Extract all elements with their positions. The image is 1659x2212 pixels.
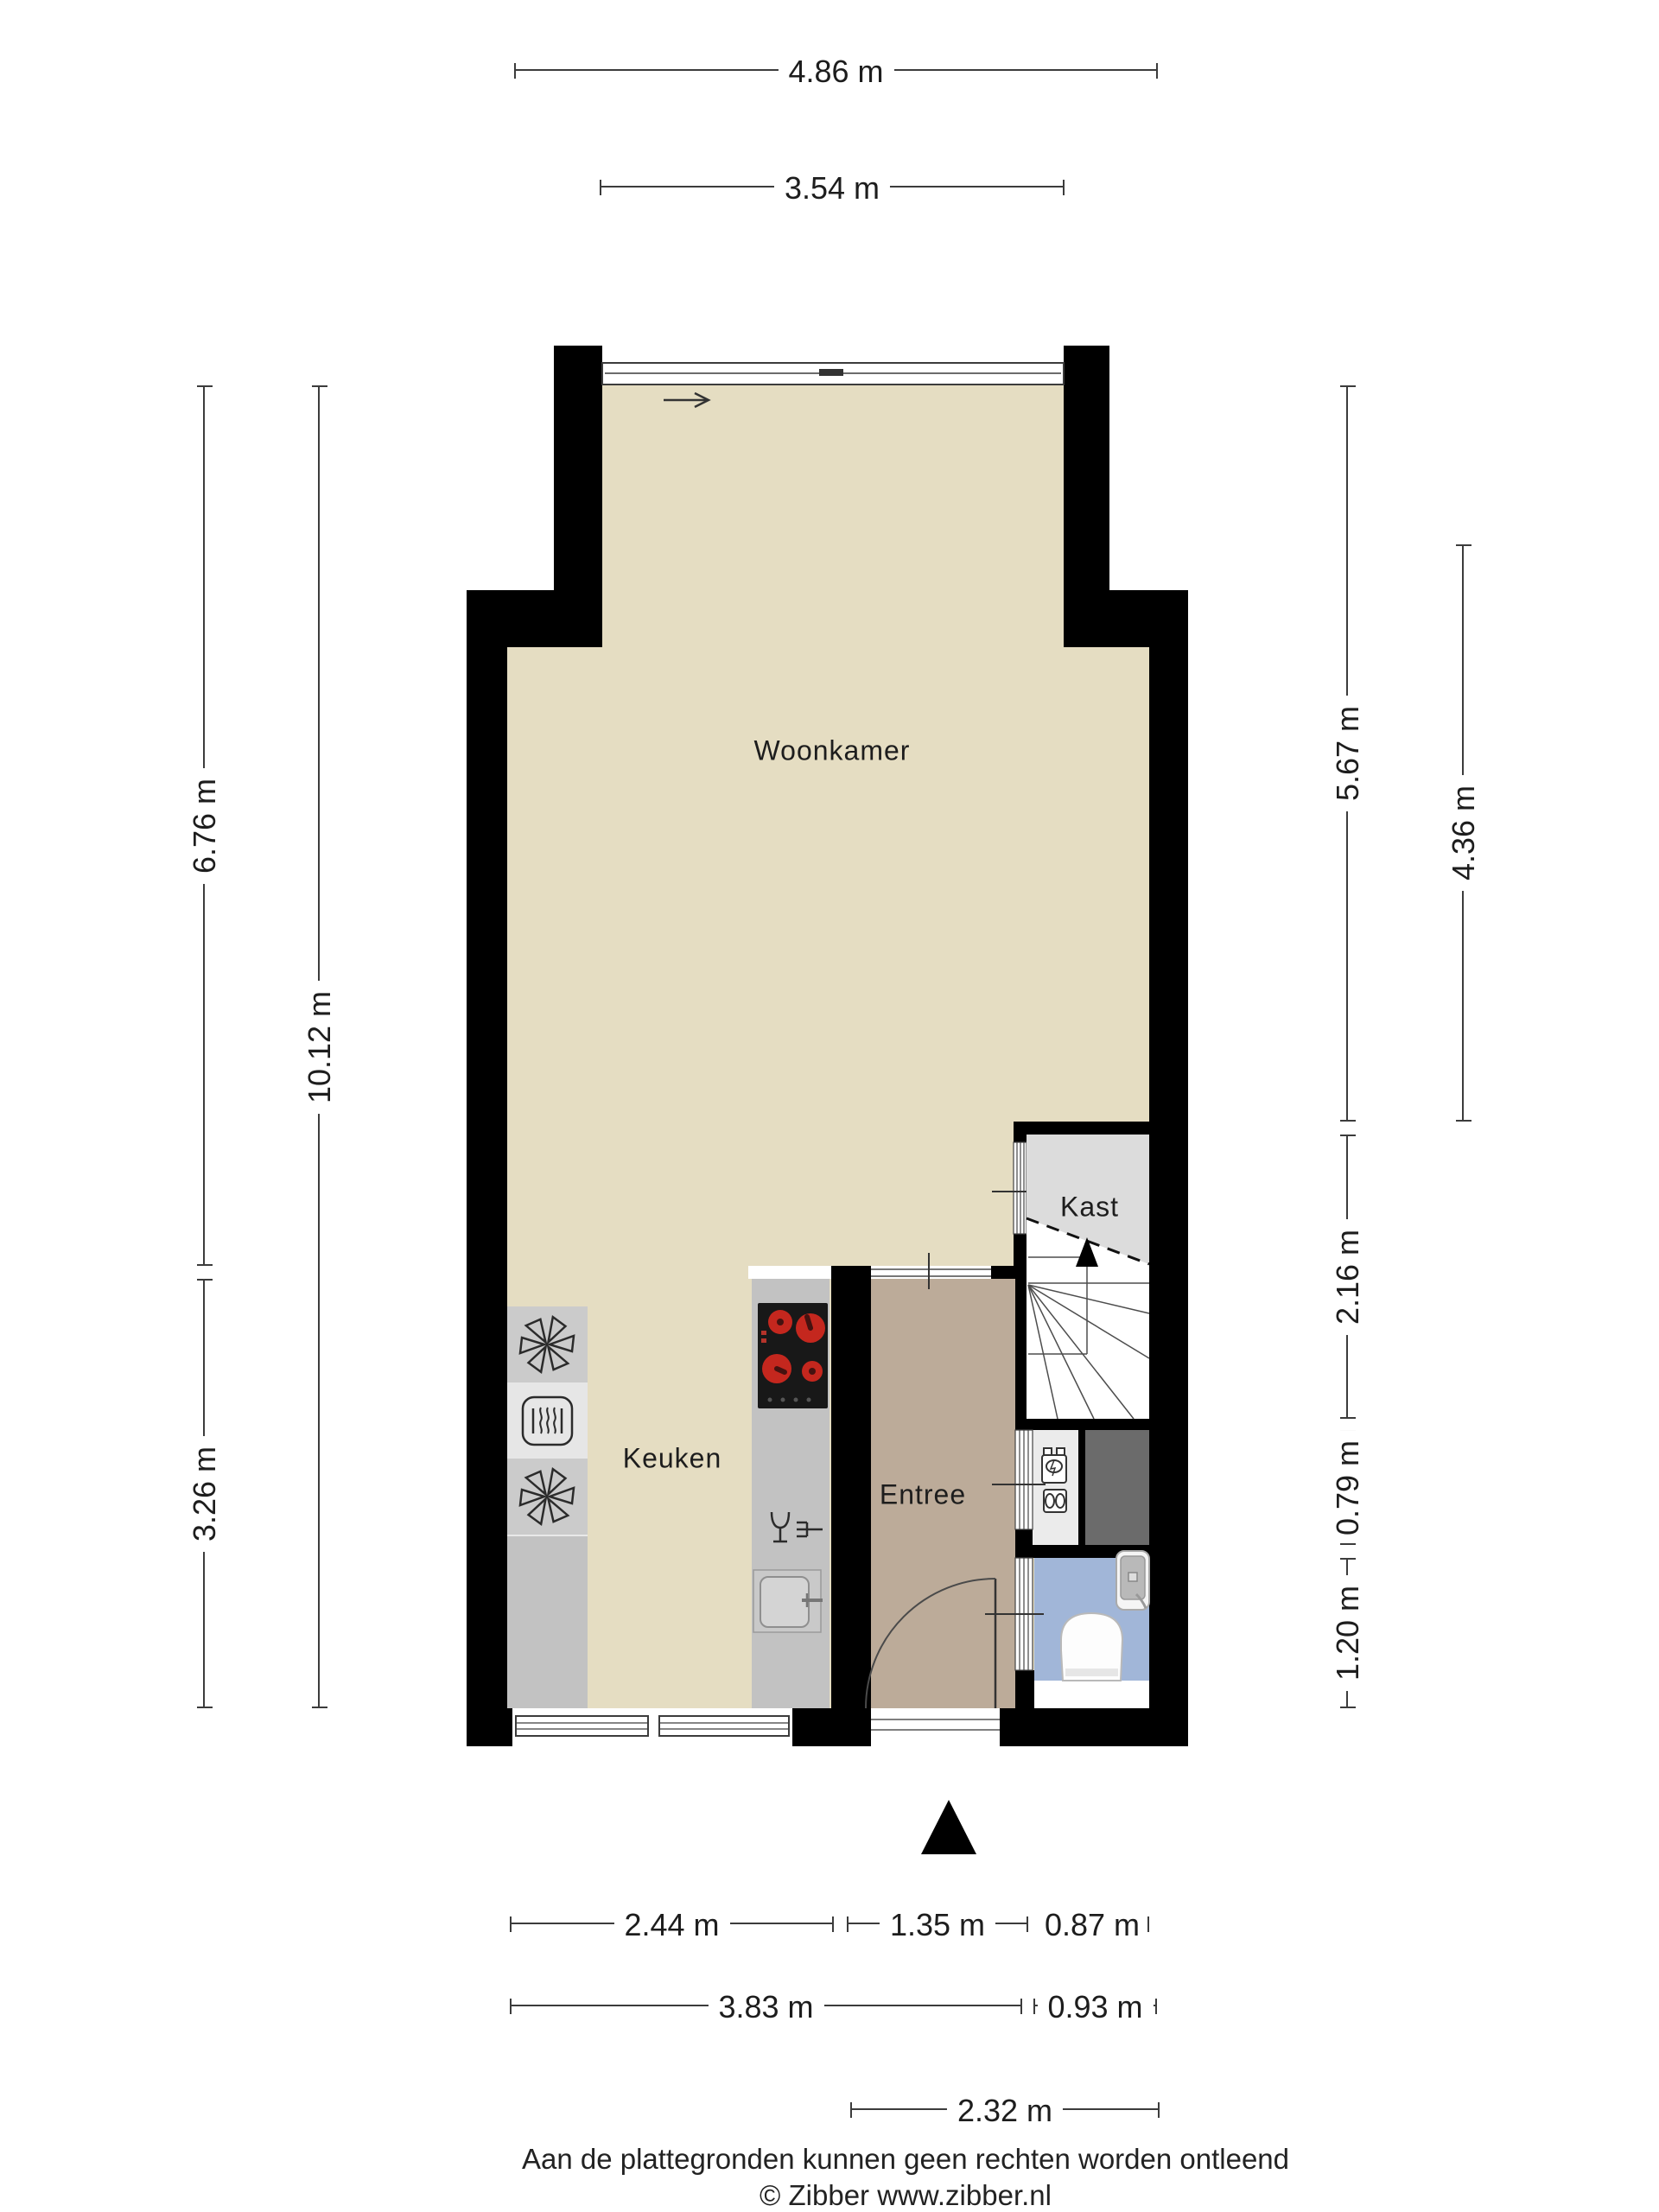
meter-cabinet-floor [1033,1430,1078,1545]
dimension-label: 2.16 m [1330,1218,1366,1334]
toilet-floor-ledge [1034,1681,1149,1708]
dimension-left-woonkamer: 6.76 m [203,385,205,1266]
wall [467,647,507,1746]
dimension-label: 2.44 m [613,1907,729,1943]
wall [554,346,602,590]
dimension-bottom-entrance: 2.32 m [850,2108,1160,2110]
room-label-woonkamer: Woonkamer [754,735,911,767]
wall [467,1708,512,1746]
dimension-right-upper: 5.67 m [1346,385,1348,1122]
kitchen-counter-right [752,1279,829,1708]
room-toilet-floor [1034,1558,1149,1681]
window-handle-icon [819,369,843,376]
wall [1015,1670,1034,1708]
dimension-label: 10.12 m [302,980,338,1113]
room-label-entree: Entree [880,1479,966,1511]
footer-disclaimer: Aan de plattegronden kunnen geen rechten… [474,2141,1338,2177]
oven-block [507,1382,588,1460]
room-woonkamer-floor-top [602,385,1064,590]
dimension-label: 2.32 m [947,2093,1063,2129]
dimension-label: 3.54 m [774,170,890,207]
window-bottom-right [659,1716,789,1736]
entrance-arrow-icon [921,1800,976,1854]
window-top [602,363,1064,385]
dimension-right-toilet: 1.20 m [1346,1558,1348,1708]
dimension-label: 3.26 m [187,1435,223,1551]
wall [1064,346,1109,590]
dimension-bottom-entree: 1.35 m [847,1923,1028,1924]
footer: Aan de plattegronden kunnen geen rechten… [474,2141,1338,2212]
kitchen-counter-right-endcap [748,1266,831,1279]
room-label-kast: Kast [1060,1192,1119,1224]
wall-meter-toilet [1015,1545,1151,1558]
wall [1015,1529,1033,1545]
window-bottom-left [516,1716,648,1736]
wall [1149,647,1188,1746]
dimension-label: 0.79 m [1330,1429,1366,1545]
wall [1014,1234,1027,1266]
wall-stairs-left [1015,1266,1028,1419]
dimension-bottom-right-narrow: 0.93 m [1033,2005,1157,2006]
wall [1064,590,1188,647]
footer-copyright: © Zibber www.zibber.nl [474,2177,1338,2212]
dimension-label: 0.87 m [1034,1907,1150,1943]
dimension-top-overall: 4.86 m [514,69,1158,71]
dimension-label: 6.76 m [187,767,223,883]
dimension-label: 4.86 m [778,54,893,90]
washing-machine-block-1 [507,1306,588,1384]
dimension-top-window: 3.54 m [600,186,1065,188]
dimension-label: 1.35 m [880,1907,995,1943]
dimension-bottom-keuken: 2.44 m [510,1923,834,1924]
wall [792,1708,871,1746]
dimension-left-overall: 10.12 m [318,385,320,1708]
wall [1000,1708,1188,1746]
dimension-right-outer: 4.36 m [1462,544,1464,1122]
dimension-right-meter: 0.79 m [1346,1430,1348,1545]
dimension-label: 0.93 m [1037,1989,1153,2025]
wall [1014,1135,1027,1142]
floor-plan: Woonkamer Keuken Entree Kast 4.86 m 3.54… [0,0,1659,2212]
dimension-bottom-toilet: 0.87 m [1035,1923,1149,1924]
room-label-keuken: Keuken [623,1443,722,1475]
washing-machine-block-2 [507,1459,588,1536]
dimension-label: 5.67 m [1330,696,1366,811]
wall-meter-divider [1078,1430,1085,1545]
dimension-bottom-left-wide: 3.83 m [510,2005,1022,2006]
dimension-left-keuken: 3.26 m [203,1279,205,1708]
wall-kast-top [1014,1122,1151,1135]
dimension-label: 1.20 m [1330,1575,1366,1691]
dimension-label: 4.36 m [1446,775,1482,891]
meter-cabinet-dark-unit [1085,1430,1149,1545]
wall-kitchen-entree [831,1266,871,1708]
dimension-right-kast: 2.16 m [1346,1135,1348,1419]
wall [467,590,602,647]
wall-stairs-bottom [1015,1419,1151,1430]
dimension-label: 3.83 m [708,1989,823,2025]
